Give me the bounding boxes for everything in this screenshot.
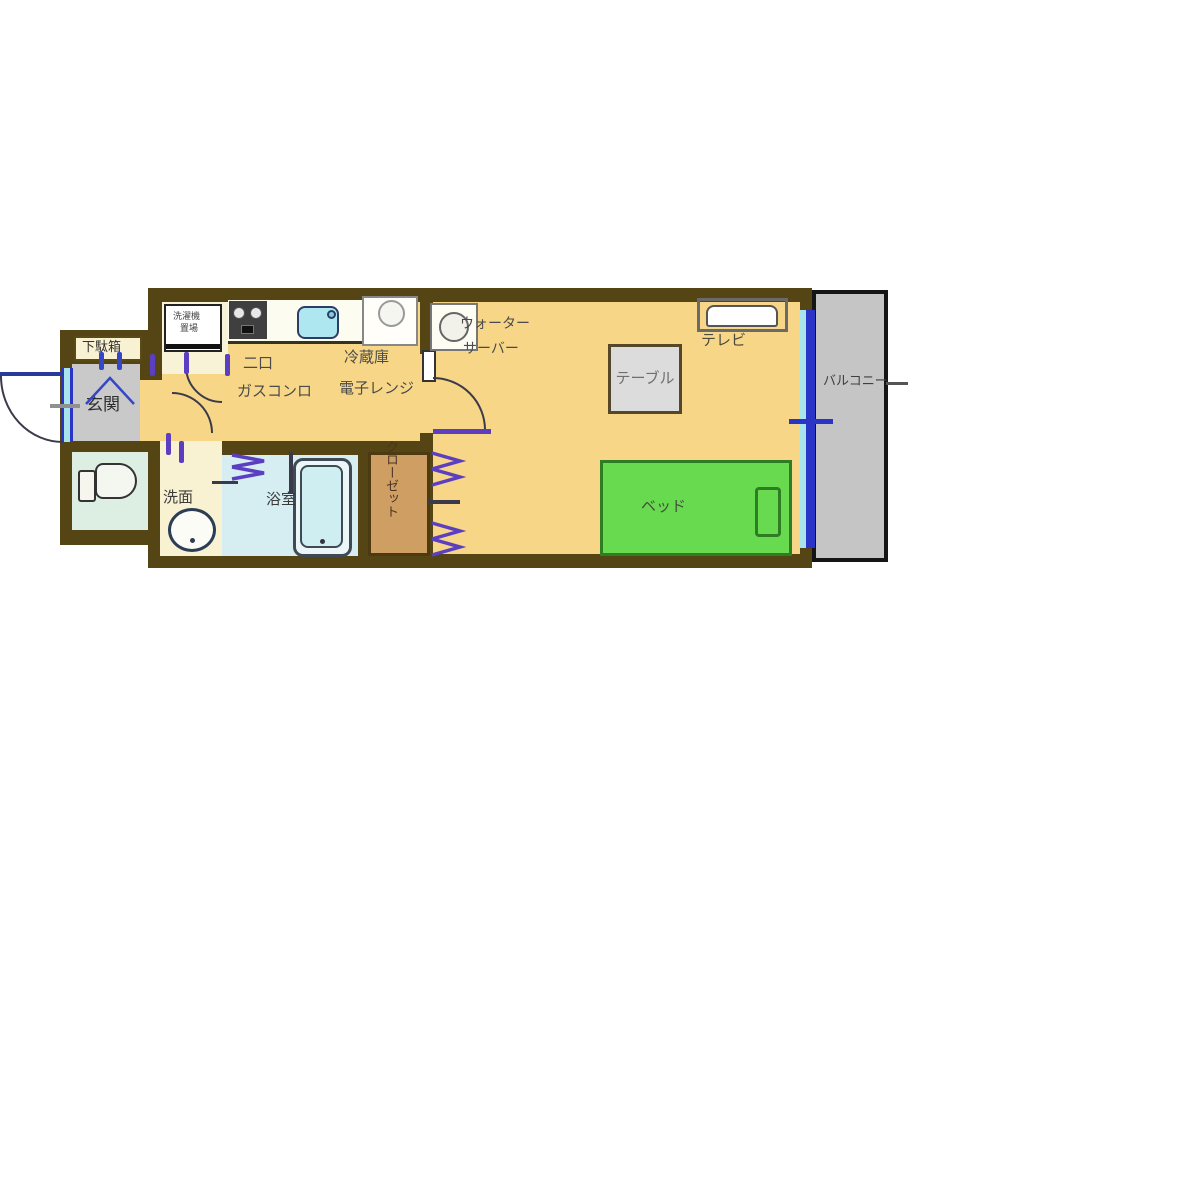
washing-machine-bar [166,344,220,349]
closet-folding-door-icon [430,450,466,490]
stove-label-2: ガスコンロ [237,384,312,401]
washroom-door-tick [179,441,184,463]
genkan-tick-right [117,352,122,370]
pillow-icon [755,487,781,537]
bathtub-inner-icon [300,465,343,548]
toilet-tank-icon [78,470,96,502]
bed: ベッド [600,460,792,556]
stove-burner-icon [233,307,245,319]
hall-tick-1 [150,354,155,376]
floor-plan: バルコニー 下駄箱 玄関 クローゼット [0,0,1200,1200]
fridge-icon [362,296,418,346]
faucet-icon [327,310,336,319]
closet-label: クローゼット [382,440,398,568]
sink-icon [297,306,339,339]
genkan-tick-left [99,352,104,370]
washroom-label: 洗面 [163,490,193,507]
fridge-label-2: 電子レンジ [339,381,414,398]
washing-machine-label-1: 洗濯機 [173,312,200,322]
hall-tick-2 [184,352,189,374]
closet-mid-dash [428,500,460,504]
balcony-window-tick [789,419,833,424]
balcony-leader-line [886,382,908,385]
bath-folding-door-icon [230,452,270,482]
toilet-bowl-icon [95,463,137,499]
washbasin-icon [168,508,216,552]
balcony [812,290,888,562]
tv-icon [697,298,788,332]
entry-door-arc [0,374,66,444]
water-server-label-2: サーバー [463,341,519,356]
table-label: テーブル [615,371,674,388]
washing-machine-label-2: 置場 [180,324,198,334]
hall-tick-3 [225,354,230,376]
stove-label-1: 二口 [243,356,273,373]
kitchen-counter [228,300,362,344]
hall-tick-4 [166,433,171,455]
stove-grill-icon [241,325,254,334]
living-door-sill [433,429,491,434]
fridge-circle-icon [378,300,405,327]
bathtub-icon [293,458,352,557]
closet-folding-door-icon [430,520,466,560]
drain-icon [320,539,325,544]
water-server-label-1: ウォーター [460,316,530,331]
balcony-label: バルコニー [823,374,888,388]
entry-door-dash [50,404,80,408]
washing-machine-icon: 洗濯機 置場 [164,304,222,352]
table: テーブル [608,344,682,414]
bed-label: ベッド [641,499,686,516]
fridge-label-1: 冷蔵庫 [344,350,389,367]
washroom-dash [212,481,238,484]
genkan-door-mark [84,376,136,406]
stove-burner-icon [250,307,262,319]
bathroom-label: 浴室 [266,492,296,509]
stove-icon [229,301,267,339]
toilet-icon [78,460,140,504]
balcony-window-glass [806,310,815,548]
basin-drain-icon [190,538,195,543]
tv-screen-icon [706,305,778,327]
closet [368,452,430,556]
tv-label: テレビ [701,333,746,350]
